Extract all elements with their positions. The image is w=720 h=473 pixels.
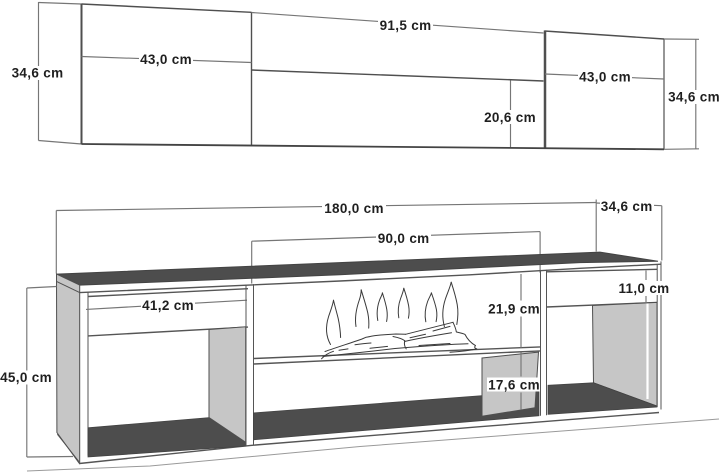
- svg-text:20,6 cm: 20,6 cm: [484, 110, 536, 125]
- svg-text:21,9 cm: 21,9 cm: [488, 301, 540, 316]
- svg-text:90,0 cm: 90,0 cm: [378, 231, 430, 246]
- svg-text:45,0 cm: 45,0 cm: [0, 370, 52, 385]
- svg-text:41,2 cm: 41,2 cm: [142, 298, 194, 313]
- svg-text:43,0 cm: 43,0 cm: [579, 69, 631, 84]
- svg-text:34,6 cm: 34,6 cm: [601, 199, 653, 214]
- svg-text:34,6 cm: 34,6 cm: [668, 90, 720, 105]
- svg-text:43,0 cm: 43,0 cm: [140, 52, 192, 67]
- svg-text:34,6 cm: 34,6 cm: [12, 66, 64, 81]
- svg-text:180,0 cm: 180,0 cm: [324, 201, 384, 216]
- svg-text:91,5 cm: 91,5 cm: [380, 18, 432, 33]
- svg-text:17,6 cm: 17,6 cm: [488, 377, 540, 392]
- svg-text:11,0 cm: 11,0 cm: [618, 281, 669, 296]
